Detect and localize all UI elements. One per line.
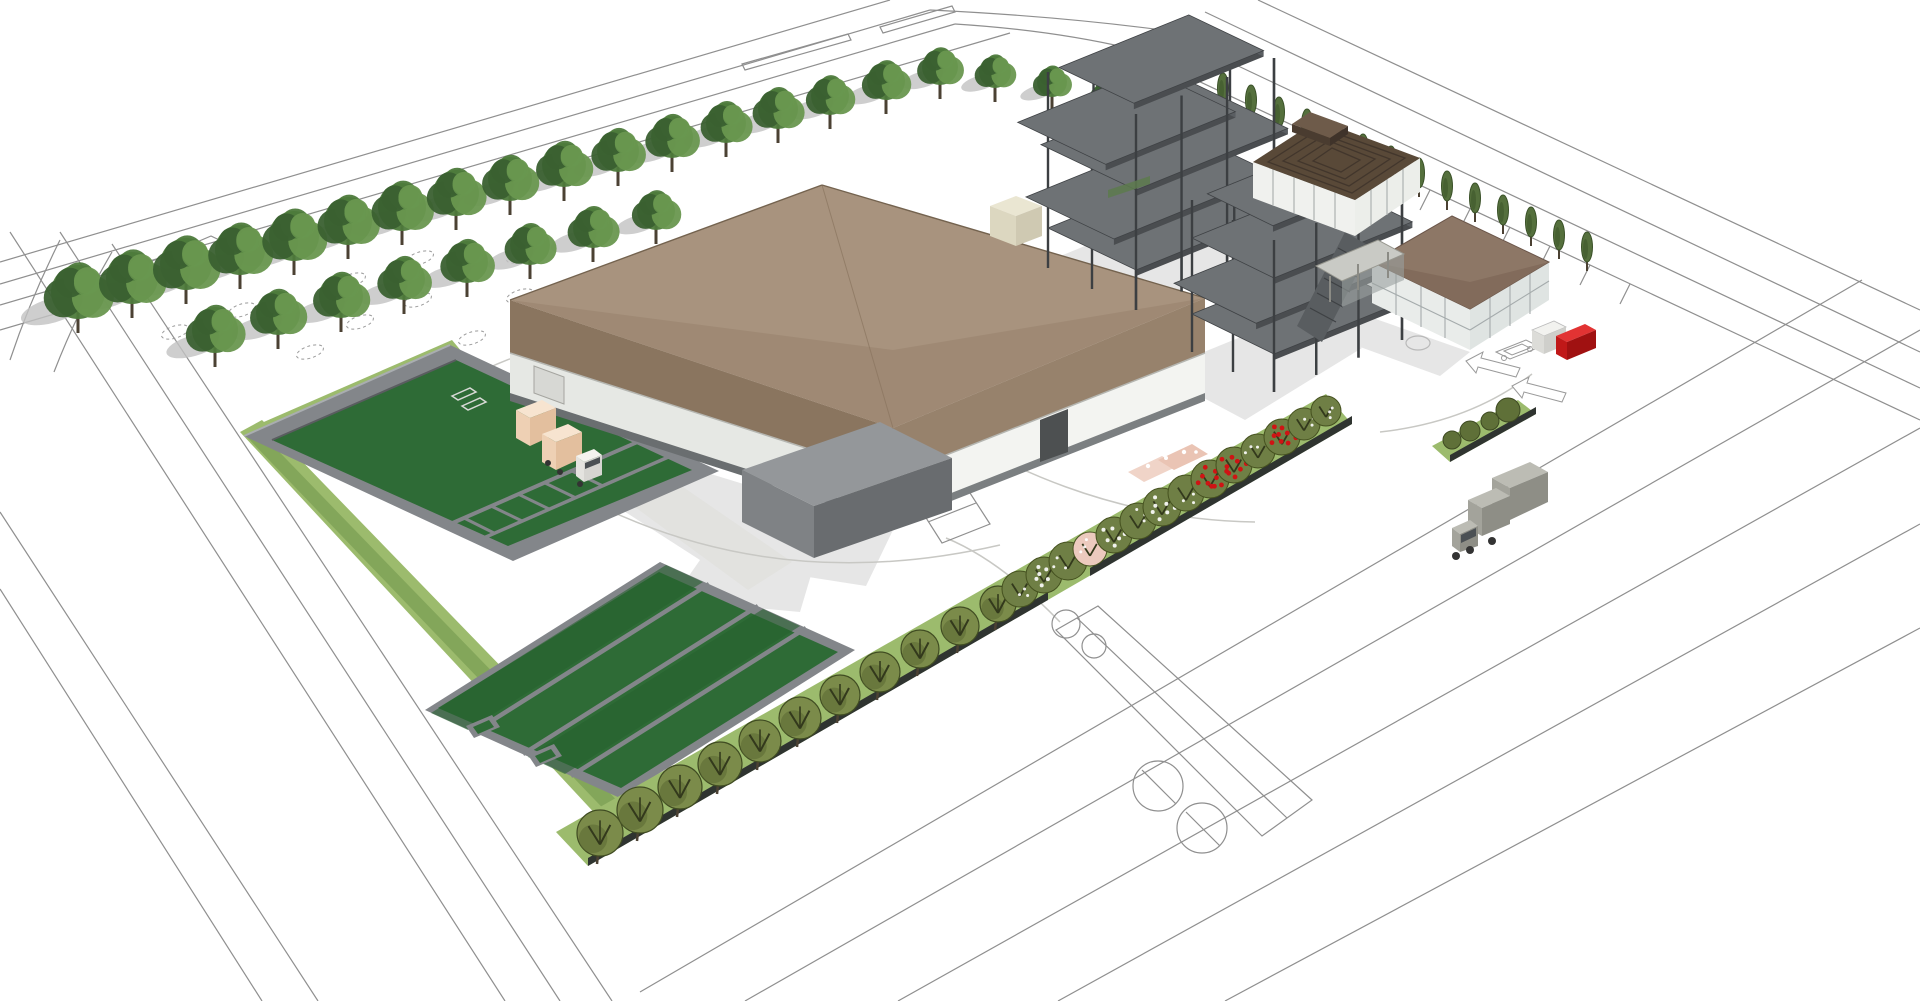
tree-icon [250, 289, 307, 349]
shrub-icon [1496, 398, 1520, 422]
tree-icon [806, 75, 855, 129]
road-line [60, 232, 560, 1001]
shrub-icon [1481, 412, 1499, 430]
road-line [898, 428, 1920, 1001]
lane-island [742, 34, 851, 70]
tree-icon [632, 190, 681, 244]
site-rendering [0, 0, 1920, 1001]
tree-icon [318, 195, 380, 259]
tree-icon [917, 47, 964, 99]
road-circle-chord [1142, 770, 1176, 804]
shrub-icon [1443, 431, 1461, 449]
tree-pit-outline [295, 342, 325, 362]
shrub-icon [1460, 421, 1480, 441]
outline-roads [0, 0, 1920, 1001]
junction-arc [955, 24, 1128, 48]
tree-icon [591, 128, 646, 186]
tree-icon [505, 223, 557, 279]
junction-arc [930, 10, 1162, 30]
road-line [0, 512, 318, 1001]
tree-icon [262, 209, 327, 276]
entrance-gate [1496, 321, 1596, 361]
tree-icon [440, 239, 495, 297]
tree-icon [186, 305, 246, 367]
poplar-tree-icon [1470, 183, 1481, 222]
tree-icon [568, 206, 620, 262]
road-arrow-icon [1466, 352, 1520, 377]
poplar-tree-icon [1442, 171, 1453, 210]
tree-icon [208, 223, 273, 290]
site-rendering-canvas [0, 0, 1920, 1001]
tree-icon [482, 155, 539, 215]
lane-island [880, 6, 955, 33]
tree-pit-outline [457, 328, 487, 348]
utility-box [990, 196, 1042, 246]
road-line [0, 589, 262, 1001]
tree-icon [372, 181, 434, 245]
road-line [1058, 524, 1920, 1001]
road-arrow-icon [1512, 377, 1566, 402]
tree-icon [645, 114, 700, 172]
driveway-line [1077, 618, 1287, 818]
tree-icon [701, 101, 753, 157]
tree-icon [377, 256, 432, 314]
poplar-tree-icon [1526, 207, 1537, 246]
tree-icon [975, 54, 1017, 102]
poplar-tree-icon [1554, 220, 1565, 259]
gap-circle [1082, 634, 1106, 658]
poplar-tree-icon [1498, 195, 1509, 234]
road-line [1225, 628, 1920, 1001]
steel-floor-slab [1059, 15, 1264, 103]
tree-icon [313, 272, 370, 332]
road-circle-chord [1186, 812, 1220, 846]
se-hedge-wall [1090, 416, 1352, 576]
tree-icon [536, 141, 593, 201]
tree-icon [862, 60, 911, 114]
flowering-tree-icon [1311, 396, 1341, 426]
